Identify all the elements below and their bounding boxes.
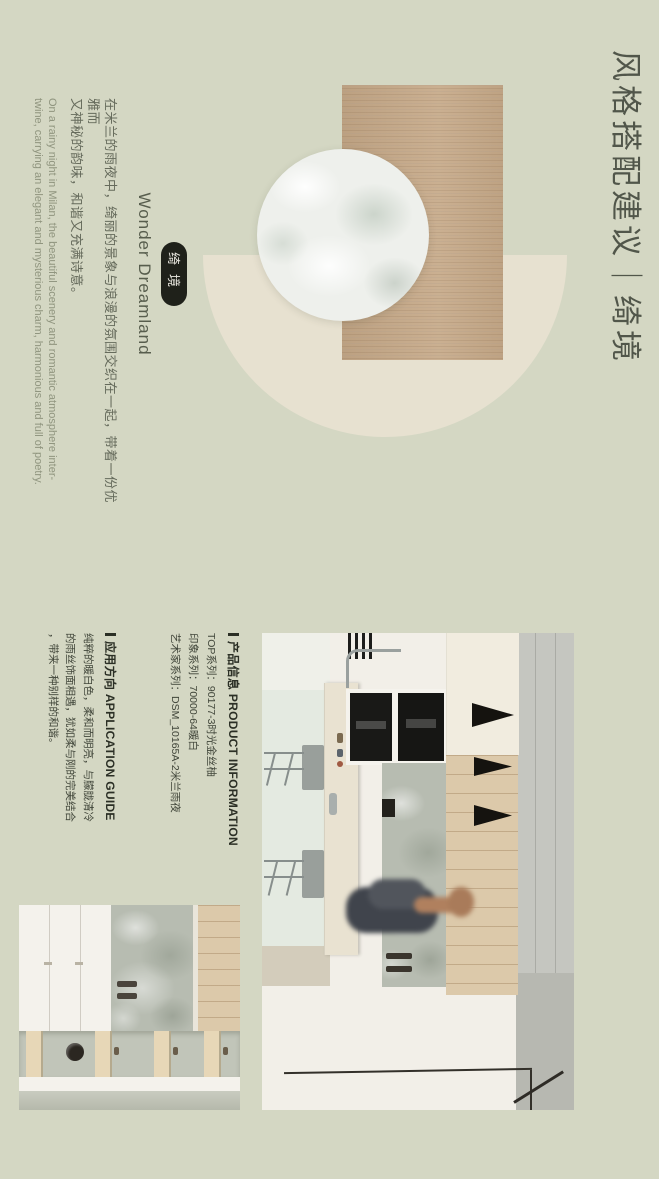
intro-paragraph-en-line1: On a rainy night in Milan, the beautiful… — [45, 98, 59, 516]
faucet — [346, 649, 401, 688]
towel-rack-rod — [264, 876, 304, 878]
guide-line3: ，带来一种别样的和谐。 — [44, 633, 62, 843]
rack-bracket — [302, 745, 324, 790]
drawer-handle — [117, 993, 137, 999]
floor-border-line — [284, 1068, 532, 1074]
cream-cabinet — [446, 633, 519, 755]
product-info-title-zh: 产品信息 — [226, 641, 240, 690]
wood-divider — [154, 1031, 171, 1077]
guide-line1: 纯粹的暖白色，柔和而明亮，与朦胧清冷 — [79, 633, 97, 843]
appliance-detail — [356, 721, 386, 729]
section-marker — [228, 633, 239, 636]
style-name-badge: 绮境 — [161, 242, 187, 306]
towel-rack-rod — [264, 752, 304, 754]
drawer-handle — [386, 953, 412, 959]
marble-wall — [111, 905, 193, 1031]
page-title: 风格搭配建议｜绮境 — [602, 50, 648, 410]
cabinet-base — [262, 946, 330, 986]
door-lock — [382, 799, 395, 817]
round-knob — [66, 1043, 84, 1061]
drawer-handle — [117, 981, 137, 987]
small-knob — [173, 1047, 178, 1055]
product-info-block: 产品信息 PRODUCT INFORMATION TOP系列：90177-3时光… — [162, 633, 242, 833]
rack-bracket — [302, 850, 324, 898]
shower-floor — [516, 973, 574, 1110]
door-hardware — [337, 733, 343, 743]
door-handle — [329, 793, 337, 815]
panel-seam — [80, 905, 81, 1031]
drawer-handle — [386, 966, 412, 972]
application-guide-block: 应用方向 APPLICATION GUIDE 纯粹的暖白色，柔和而明亮，与朦胧清… — [24, 633, 119, 843]
intro-paragraph-zh-line1: 在米兰的雨夜中，绮丽的景象与浪漫的氛围交织在一起，带着一份优雅而 — [85, 98, 119, 516]
appliance-black — [398, 693, 444, 761]
appliance-black — [350, 693, 392, 761]
towel-rack-rod — [264, 860, 304, 862]
toe-kick-strip — [19, 1077, 240, 1091]
door-handle — [75, 962, 83, 965]
application-guide-header: 应用方向 APPLICATION GUIDE — [102, 633, 119, 843]
spec-row-impression-series: 印象系列：70000-64暖白 — [187, 633, 199, 833]
wood-divider — [95, 1031, 112, 1077]
product-info-title-en: PRODUCT INFORMATION — [226, 694, 240, 846]
style-name-english: Wonder Dreamland — [134, 98, 154, 450]
pearl-texture-swatch — [257, 149, 429, 321]
wood-divider — [26, 1031, 43, 1077]
section-marker — [105, 633, 116, 636]
white-door-panels — [19, 905, 111, 1031]
catalog-page: 风格搭配建议｜绮境 绮境 Wonder Dreamland 在米兰的雨夜中，绮丽… — [0, 0, 659, 1179]
cabinet-panel — [262, 633, 330, 694]
door-handle — [44, 962, 52, 965]
application-guide-title-zh: 应用方向 — [103, 641, 117, 690]
door-hardware — [337, 749, 343, 757]
spec-row-top-series: TOP系列：90177-3时光金丝柚 — [205, 633, 217, 833]
spec-row-artist-series: 艺术家系列：DSM_10165A-2米兰雨夜 — [169, 633, 181, 833]
small-knob — [114, 1047, 119, 1055]
person-head — [448, 887, 474, 917]
wood-divider — [204, 1031, 221, 1077]
mirror-cabinet — [262, 690, 325, 946]
panel-seam — [49, 905, 50, 1031]
application-guide-title-en: APPLICATION GUIDE — [103, 694, 117, 821]
blurred-person — [346, 879, 476, 937]
application-photo-secondary — [19, 905, 240, 1110]
guide-line2: 的雨丝饰面相遇，犹如柔与刚的完美结合 — [61, 633, 79, 843]
bench-niche — [19, 1031, 240, 1077]
intro-paragraph-zh-line2: 又神秘的韵味，和谐又充满诗意。 — [68, 98, 85, 516]
floor — [19, 1091, 240, 1110]
intro-block: 绮境 Wonder Dreamland 在米兰的雨夜中，绮丽的景象与浪漫的氛围交… — [46, 98, 187, 516]
product-info-header: 产品信息 PRODUCT INFORMATION — [225, 633, 242, 833]
appliance-detail — [406, 719, 436, 728]
small-knob — [223, 1047, 228, 1055]
application-photo-main — [262, 633, 574, 1110]
wood-slat-panel — [446, 755, 518, 995]
towel-rack-leg — [268, 860, 279, 895]
door-hardware — [337, 761, 343, 767]
intro-paragraph-en-line2: twine, carrying an elegant and mysteriou… — [31, 98, 45, 516]
wood-cabinet — [198, 905, 240, 1031]
towel-rack-leg — [286, 860, 297, 895]
